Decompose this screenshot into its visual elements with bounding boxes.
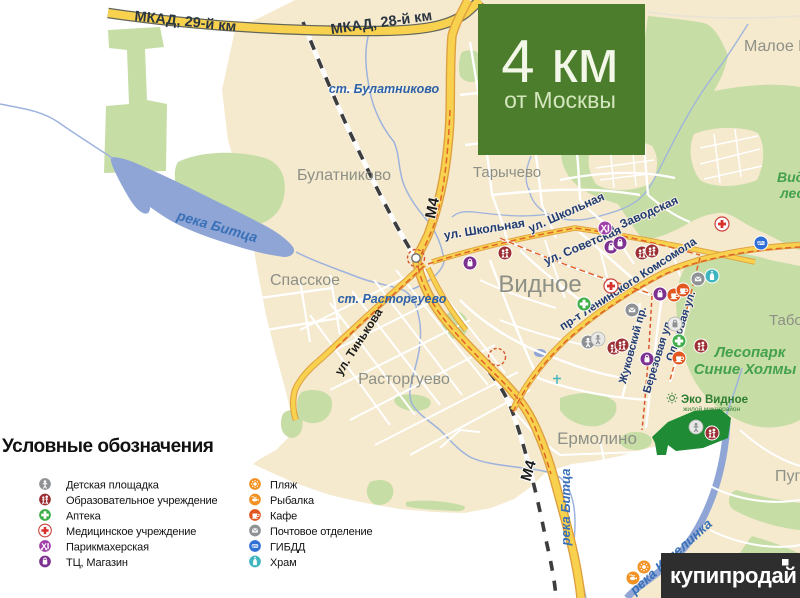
svg-text:Аптека: Аптека <box>66 511 102 523</box>
svg-text:Храм: Храм <box>270 557 297 569</box>
svg-text:Видное: Видное <box>498 271 581 298</box>
svg-text:Видновский: Видновский <box>777 169 800 185</box>
svg-text:Кафе: Кафе <box>270 511 297 523</box>
svg-text:Пуговичино: Пуговичино <box>775 468 800 485</box>
svg-text:Ермолино: Ермолино <box>557 429 637 448</box>
svg-text:Булатниково: Булатниково <box>297 167 391 184</box>
svg-text:Медицинское учреждение: Медицинское учреждение <box>66 526 196 538</box>
svg-text:ст. Булатниково: ст. Булатниково <box>329 82 440 96</box>
svg-text:Детская площадка: Детская площадка <box>66 480 160 492</box>
svg-text:Спасское: Спасское <box>270 272 340 289</box>
svg-text:Парикмахерская: Парикмахерская <box>66 542 149 554</box>
svg-text:Тарычево: Тарычево <box>473 164 541 181</box>
svg-text:Синие Холмы: Синие Холмы <box>694 361 797 378</box>
svg-text:ГИБДД: ГИБДД <box>270 542 306 554</box>
svg-text:ТЦ, Магазин: ТЦ, Магазин <box>66 557 128 569</box>
svg-text:купипродай: купипродай <box>670 563 797 588</box>
svg-text:Пляж: Пляж <box>270 480 298 492</box>
svg-text:Образовательное учреждение: Образовательное учреждение <box>66 495 217 507</box>
svg-text:Расторгуево: Расторгуево <box>358 371 450 388</box>
svg-text:Условные обозначения: Условные обозначения <box>2 436 213 457</box>
svg-text:ст. Расторгуево: ст. Расторгуево <box>338 292 447 306</box>
svg-text:Малое Видное: Малое Видное <box>744 38 800 55</box>
svg-text:жилой микрорайон: жилой микрорайон <box>683 405 741 413</box>
svg-text:река Битца: река Битца <box>558 469 573 547</box>
svg-text:лесопарк: лесопарк <box>779 185 800 201</box>
svg-text:Эко Видное: Эко Видное <box>681 394 748 406</box>
svg-text:4 км: 4 км <box>501 28 619 95</box>
svg-text:Рыбалка: Рыбалка <box>270 495 315 507</box>
svg-text:Лесопарк: Лесопарк <box>714 344 787 361</box>
svg-text:Таболово: Таболово <box>769 312 800 329</box>
svg-text:от Москвы: от Москвы <box>504 87 616 113</box>
svg-text:Почтовое отделение: Почтовое отделение <box>270 526 372 538</box>
